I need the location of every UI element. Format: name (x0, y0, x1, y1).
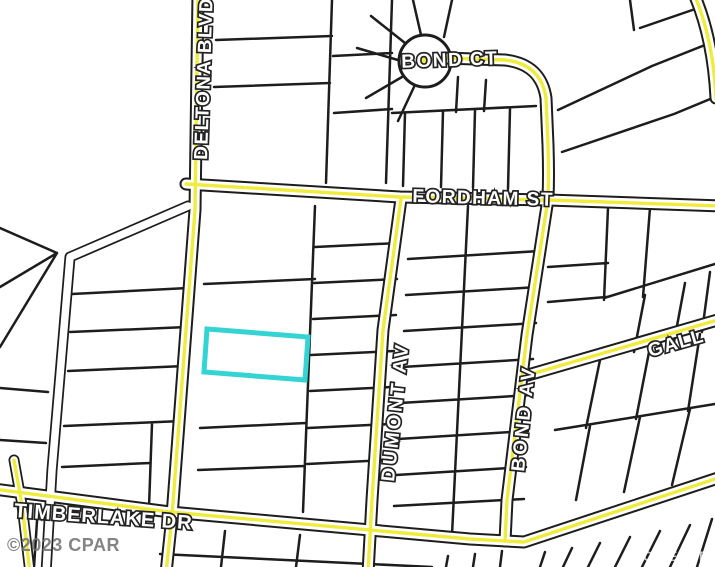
street-label-deltona-blvd: DELTONA BLVD (191, 0, 218, 160)
road-center-lines (0, 0, 715, 567)
road-surfaces (0, 0, 715, 567)
street-label-fordham-st: FORDHAM ST (412, 186, 554, 211)
street-label-bond-av: BOND AV (508, 364, 540, 472)
road-casings (0, 0, 715, 567)
plat-map-image[interactable]: DELTONA BLVD BOND CT FORDHAM ST DUMONT A… (0, 0, 715, 567)
highlighted-parcel[interactable] (204, 329, 308, 380)
plat-map-svg: DELTONA BLVD BOND CT FORDHAM ST DUMONT A… (0, 0, 715, 567)
watermark-copyright: ©2023 CPAR (7, 535, 120, 555)
street-label-bond-ct: BOND CT (401, 48, 499, 72)
watermark-powered-by: POWERED B (633, 549, 715, 564)
road-bond-ct (444, 58, 549, 199)
street-labels: DELTONA BLVD BOND CT FORDHAM ST DUMONT A… (14, 0, 707, 534)
parcel-lines (0, 0, 715, 567)
